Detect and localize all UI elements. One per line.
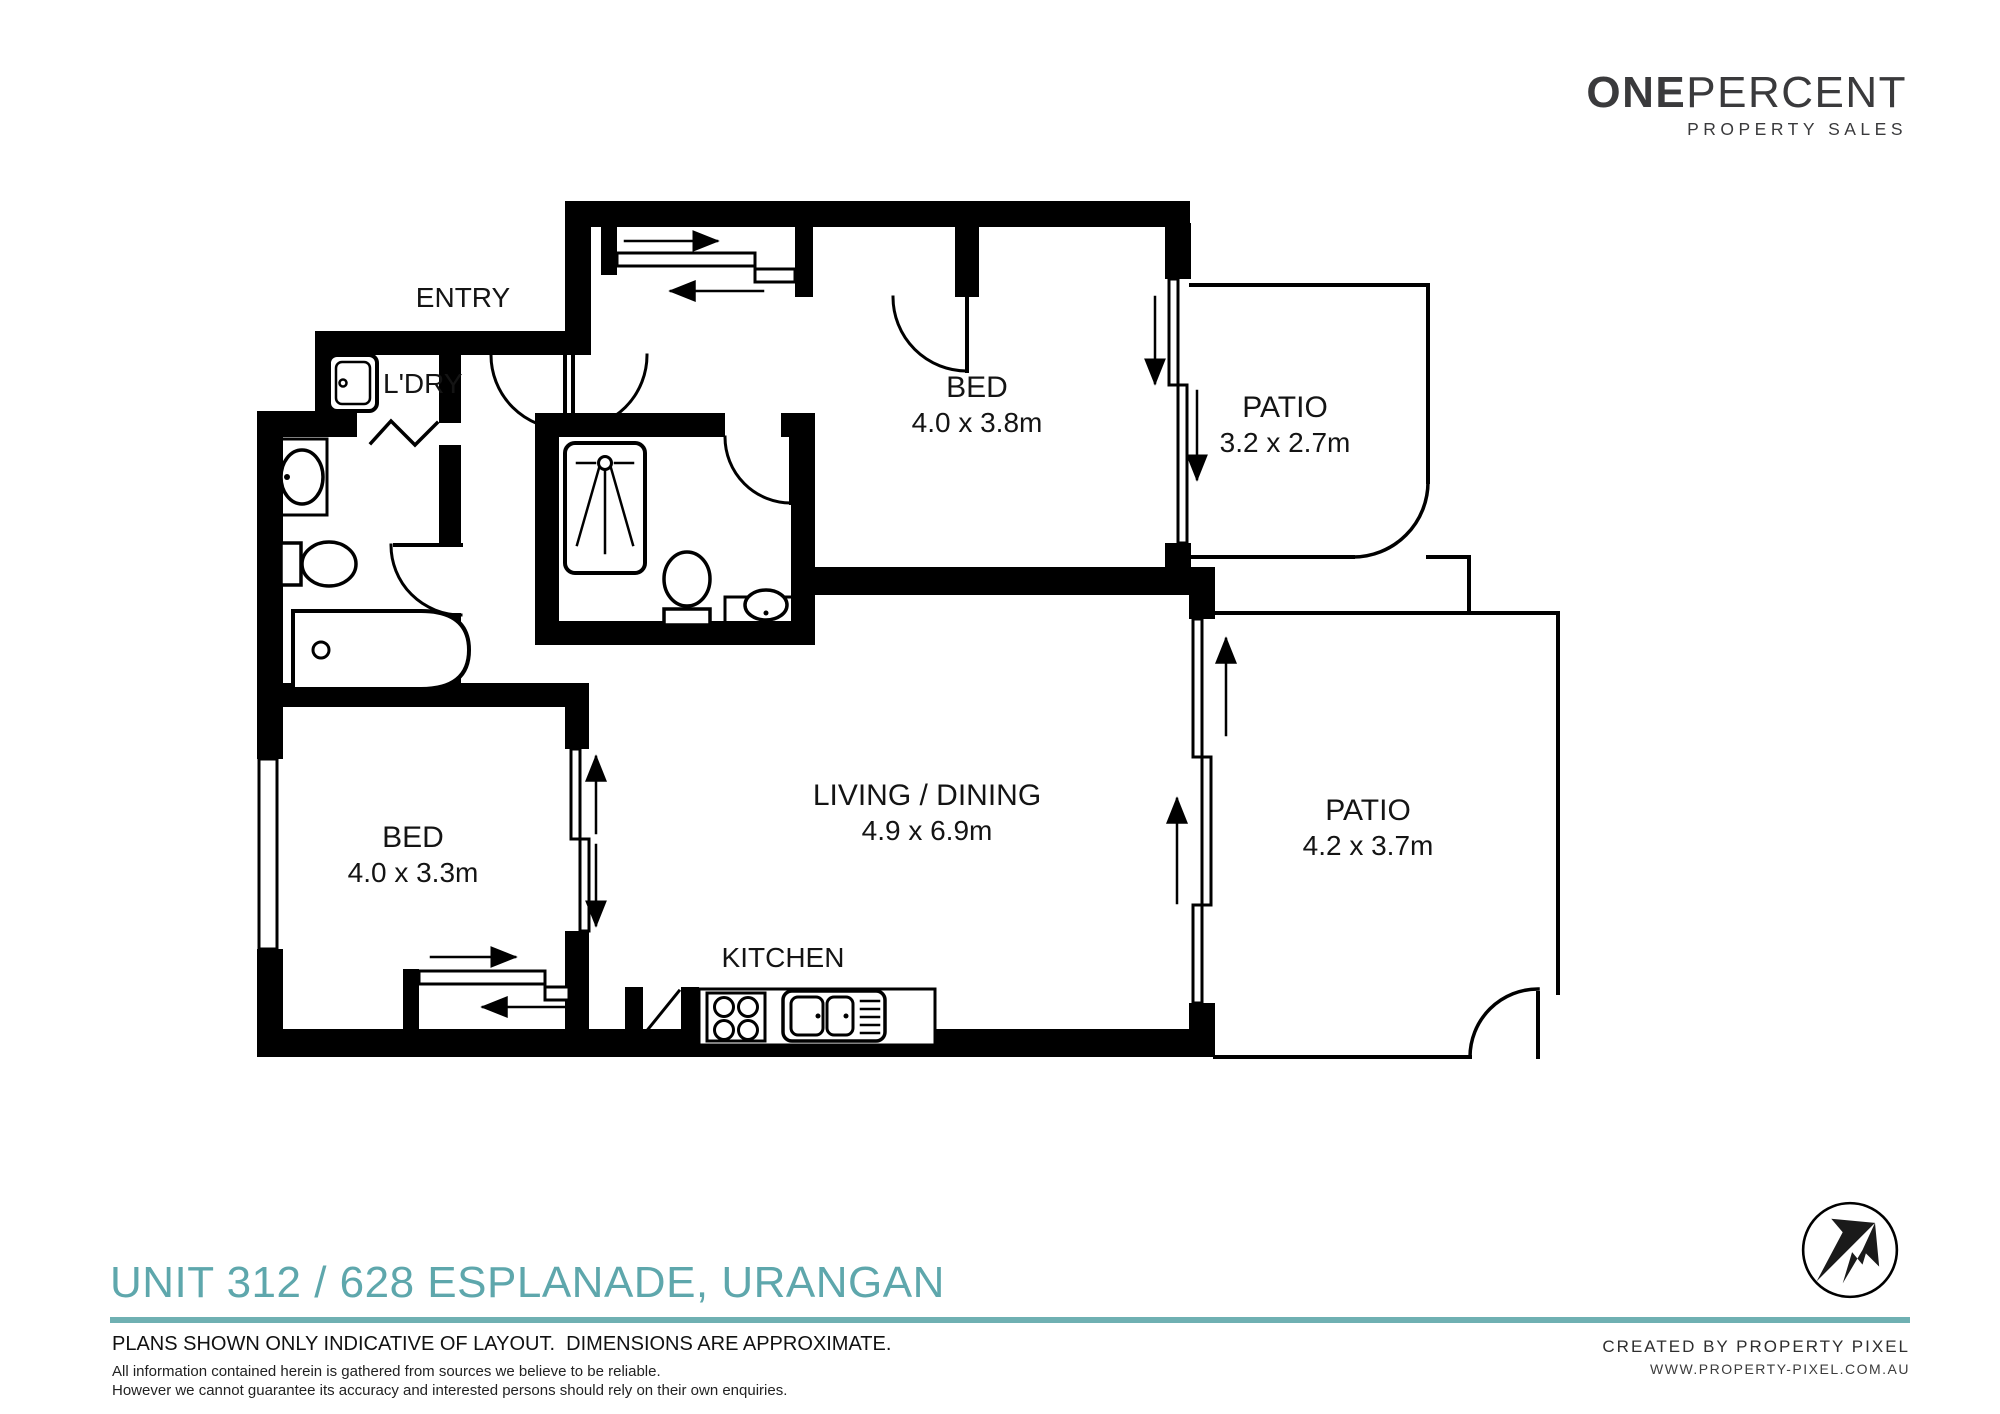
floorplan-page: ONEPERCENT PROPERTY SALES bbox=[0, 0, 2000, 1414]
room-dims-bed1: 4.0 x 3.8m bbox=[912, 407, 1043, 438]
accent-divider bbox=[110, 1317, 1910, 1323]
room-dims-bed2: 4.0 x 3.3m bbox=[348, 857, 479, 888]
patio1-door bbox=[1353, 482, 1428, 557]
credit-line: CREATED BY PROPERTY PIXEL bbox=[1602, 1337, 1910, 1357]
room-label-laundry: L'DRY bbox=[383, 368, 463, 399]
patio2-door bbox=[1470, 989, 1538, 1057]
property-pixel-logo bbox=[1800, 1200, 1900, 1300]
wardrobe-sliding-doors-bed1 bbox=[617, 241, 795, 291]
page-title: UNIT 312 / 628 ESPLANADE, URANGAN bbox=[110, 1258, 945, 1308]
bathroom-door bbox=[391, 545, 461, 615]
disclaimer-line1: All information contained herein is gath… bbox=[112, 1363, 661, 1380]
window bbox=[259, 759, 277, 949]
room-label-kitchen: KITCHEN bbox=[722, 942, 845, 973]
ensuite-door bbox=[725, 437, 791, 503]
room-dims-patio1: 3.2 x 2.7m bbox=[1220, 427, 1351, 458]
room-label-patio1: PATIO bbox=[1242, 391, 1328, 424]
wardrobe-sliding-doors-bed2 bbox=[419, 957, 569, 1007]
room-dims-living: 4.9 x 6.9m bbox=[862, 815, 993, 846]
disclaimer-primary: PLANS SHOWN ONLY INDICATIVE OF LAYOUT. D… bbox=[112, 1333, 891, 1356]
bathroom-toilet-icon bbox=[281, 542, 356, 586]
floorplan-drawing: ENTRY L'DRY BED 4.0 x 3.8m PATIO 3.2 x 2… bbox=[0, 0, 2000, 1414]
bathroom-basin-icon bbox=[281, 439, 327, 515]
shower-icon bbox=[565, 443, 645, 573]
room-label-bed1: BED bbox=[946, 371, 1008, 404]
kitchen-sink-icon bbox=[783, 991, 885, 1041]
sliding-door-patio1 bbox=[1155, 279, 1197, 543]
room-label-patio2: PATIO bbox=[1325, 794, 1411, 827]
credit-url: WWW.PROPERTY-PIXEL.COM.AU bbox=[1650, 1361, 1910, 1377]
disclaimer-line2: However we cannot guarantee its accuracy… bbox=[112, 1382, 787, 1399]
room-dims-patio2: 4.2 x 3.7m bbox=[1303, 830, 1434, 861]
room-label-entry: ENTRY bbox=[416, 282, 511, 313]
washing-machine-icon bbox=[329, 355, 377, 411]
sliding-door-patio2 bbox=[1177, 619, 1226, 1003]
zigzag-opening bbox=[371, 421, 437, 445]
room-label-bed2: BED bbox=[382, 821, 444, 854]
sliding-door-bed2 bbox=[571, 749, 596, 931]
cooktop-icon bbox=[707, 993, 765, 1041]
bathtub-icon bbox=[293, 611, 469, 689]
bedroom1-door bbox=[893, 297, 967, 371]
room-label-living: LIVING / DINING bbox=[813, 779, 1041, 812]
ensuite-toilet-icon bbox=[664, 552, 710, 625]
